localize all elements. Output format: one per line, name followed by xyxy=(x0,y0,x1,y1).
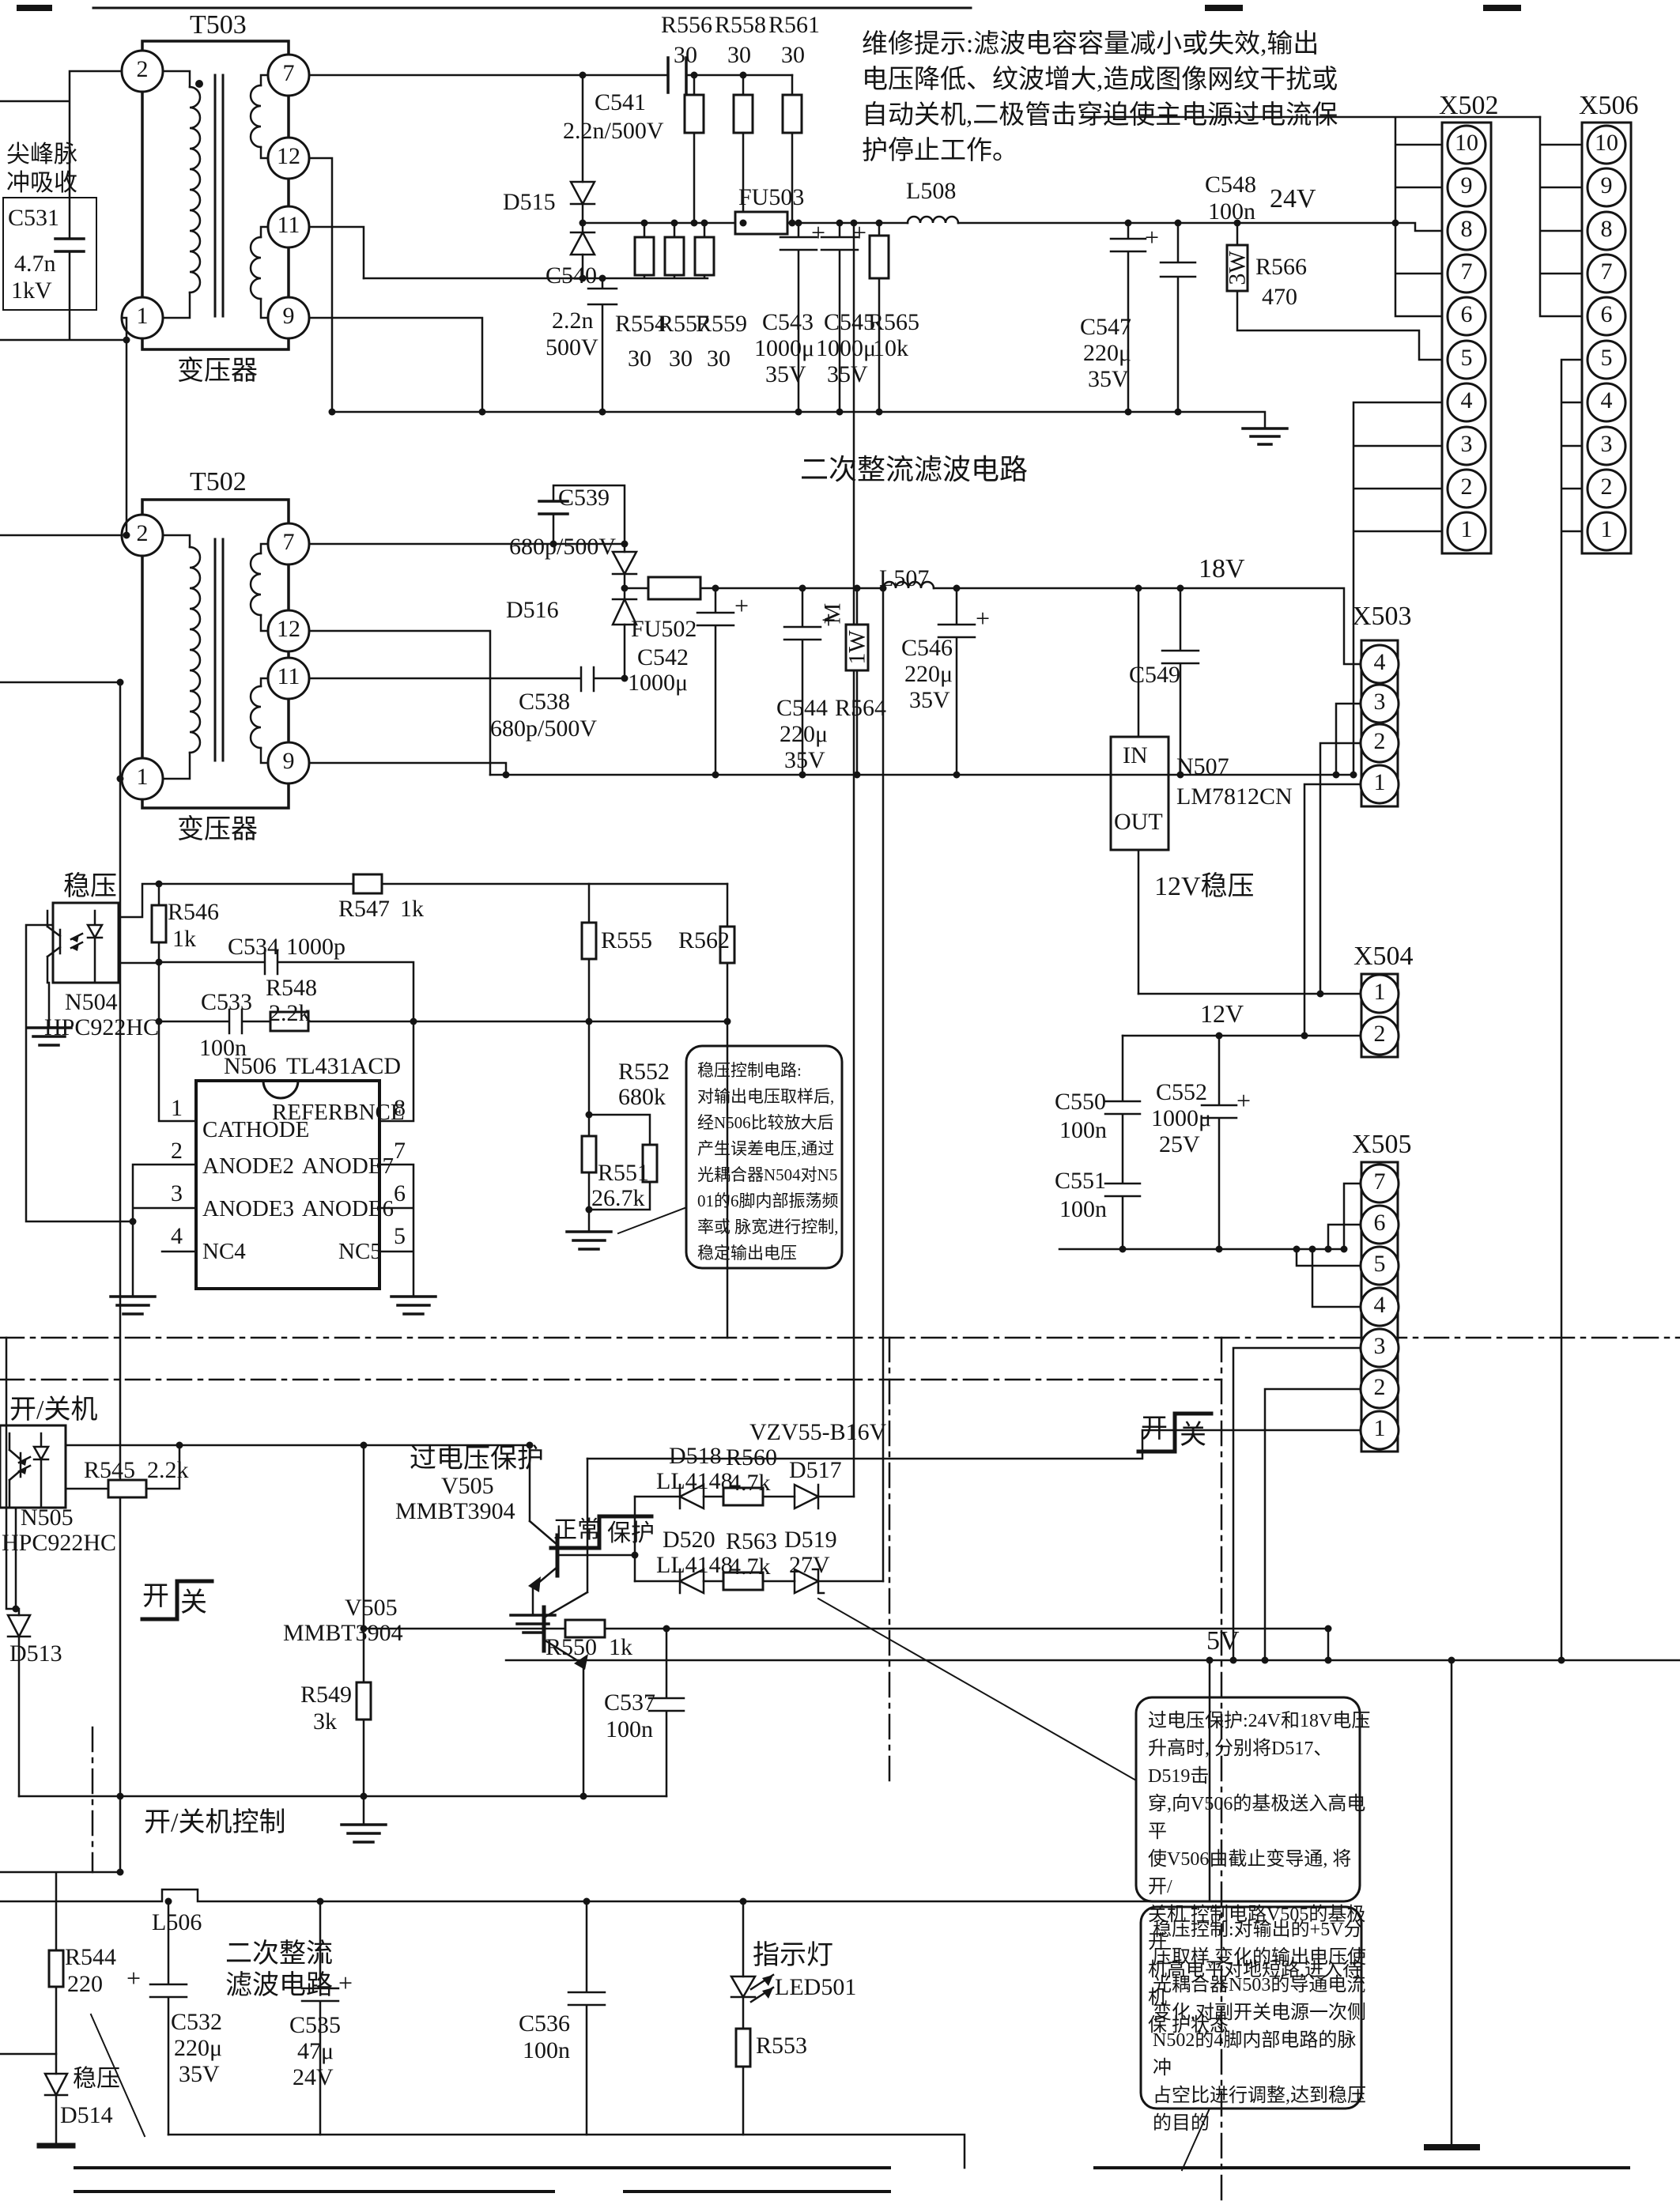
x502-pin7: 7 xyxy=(1449,259,1484,284)
r546-ref: R546 xyxy=(168,900,219,924)
labels-layer: T503变压器尖峰脉冲吸收C5314.7n1kVD515C5412.2n/500… xyxy=(0,0,1680,2201)
wave-normal: 正常 xyxy=(553,1518,601,1542)
n506-nc4: NC4 xyxy=(202,1240,246,1263)
spike-absorb-line1: 尖峰脉 xyxy=(6,142,77,167)
n505-name: 开/关机 xyxy=(9,1396,97,1424)
r560-val: 4.7k xyxy=(729,1470,771,1495)
r566-val: 470 xyxy=(1262,285,1297,309)
r547-val: 1k xyxy=(400,897,424,921)
n506-part: TL431ACD xyxy=(286,1054,401,1078)
sw1-off: 关 xyxy=(180,1589,207,1617)
d518-part: LL4148 xyxy=(656,1469,733,1493)
n507-in: IN xyxy=(1123,743,1148,768)
t503-pin12: 12 xyxy=(271,144,306,168)
r554-val: 30 xyxy=(628,346,651,371)
v506-ref: V505 xyxy=(441,1474,494,1498)
schematic-page: T503变压器尖峰脉冲吸收C5314.7n1kVD515C5412.2n/500… xyxy=(0,0,1680,2201)
n505-ref: N505 xyxy=(21,1505,74,1530)
c544-val1: 220μ xyxy=(780,722,828,746)
t502-pin1: 1 xyxy=(125,764,160,789)
n506-p3: 3 xyxy=(171,1181,183,1206)
r545-ref: R545 xyxy=(84,1458,135,1482)
section-title-bottom2: 滤波电路 xyxy=(225,1972,333,1999)
t502-pin12: 12 xyxy=(271,617,306,641)
n507-part: LM7812CN xyxy=(1176,784,1293,809)
c546-ref: C546 xyxy=(901,636,953,660)
x502-pin3: 3 xyxy=(1449,432,1484,456)
service-note: 维修提示:滤波电容容量减小或失效,输出 电压降低、纹波增大,造成图像网纹干扰或 … xyxy=(862,27,1407,169)
r553-ref: R553 xyxy=(756,2033,807,2058)
c552-ref: C552 xyxy=(1156,1080,1207,1104)
x502-pin10: 10 xyxy=(1449,130,1484,155)
x506-pin10: 10 xyxy=(1589,130,1624,155)
n504-part: HPC922HC xyxy=(44,1015,159,1040)
c547-plus: + xyxy=(1145,225,1159,251)
x503-pin3: 3 xyxy=(1362,689,1397,714)
c542-plus: + xyxy=(734,593,749,619)
n506-anode6: ANODE6 xyxy=(302,1197,394,1221)
n506-ref: N506 xyxy=(224,1054,277,1078)
c549-ref: C549 xyxy=(1129,663,1180,687)
rail-5v: 5V xyxy=(1206,1627,1240,1655)
x502-pin6: 6 xyxy=(1449,302,1484,327)
c539-val: 680p/500V xyxy=(509,534,616,559)
t503-pin1: 1 xyxy=(125,304,160,328)
led-name: 指示灯 xyxy=(753,1942,833,1969)
c538-ref: C538 xyxy=(519,689,570,714)
rail-12v: 12V xyxy=(1200,1001,1244,1027)
r555-ref: R555 xyxy=(601,928,652,953)
r550-val: 1k xyxy=(609,1635,632,1659)
n506-nc5: NC5 xyxy=(338,1240,382,1263)
t503-pin9: 9 xyxy=(271,304,306,328)
c531-val2: 1kV xyxy=(11,278,52,303)
x502-pin9: 9 xyxy=(1449,173,1484,198)
n506-p4: 4 xyxy=(171,1224,183,1248)
c535-val1: 47μ xyxy=(297,2039,334,2063)
c531-val1: 4.7n xyxy=(14,251,56,276)
c552-val2: 25V xyxy=(1159,1132,1200,1157)
t503-pin2: 2 xyxy=(125,57,160,81)
r547-ref: R547 xyxy=(338,897,390,921)
r566-ref: R566 xyxy=(1255,255,1307,279)
v505-ref: V505 xyxy=(345,1595,398,1620)
r548-ref: R548 xyxy=(266,976,317,1000)
d514-name: 稳压 xyxy=(73,2067,120,2091)
spike-absorb-line2: 冲吸收 xyxy=(6,171,77,195)
c543-plus: + xyxy=(811,220,825,246)
d516-ref: D516 xyxy=(506,598,559,622)
x506-pin4: 4 xyxy=(1589,388,1624,413)
r549-val: 3k xyxy=(313,1709,337,1734)
c541-ref: C541 xyxy=(595,90,646,115)
c550-ref: C550 xyxy=(1055,1089,1106,1114)
c532-ref: C532 xyxy=(171,2010,222,2034)
d519-val: 27V xyxy=(789,1553,830,1577)
r563-val: 4.7k xyxy=(729,1554,771,1579)
c539-ref: C539 xyxy=(558,485,610,510)
c545-val1: 1000μ xyxy=(816,336,876,361)
n506-reference: REFERBNCE xyxy=(272,1100,405,1124)
n506-p7: 7 xyxy=(394,1138,406,1163)
r548-val: 2.2k xyxy=(269,1001,311,1025)
t503-name: 变压器 xyxy=(177,357,258,385)
sw1-on: 开 xyxy=(142,1583,169,1610)
x505-pin1: 1 xyxy=(1362,1416,1397,1440)
c532-val1: 220μ xyxy=(174,2036,222,2060)
c541-val: 2.2n/500V xyxy=(563,119,664,143)
r557-val: 30 xyxy=(669,346,693,371)
r561-ref: R561 xyxy=(768,13,820,37)
t503-pin11: 11 xyxy=(271,213,306,237)
n506-p8: 8 xyxy=(394,1096,406,1120)
x503-pin2: 2 xyxy=(1362,729,1397,753)
c532-val2: 35V xyxy=(179,2062,220,2086)
c551-val: 100n xyxy=(1059,1197,1107,1221)
t502-pin2: 2 xyxy=(125,521,160,546)
n506-p6: 6 xyxy=(394,1181,406,1206)
c531-ref: C531 xyxy=(8,206,59,230)
x505-pin4: 4 xyxy=(1362,1293,1397,1317)
r558-val: 30 xyxy=(727,43,751,67)
x506-pin9: 9 xyxy=(1589,173,1624,198)
r544-val: 220 xyxy=(67,1972,103,1996)
d520-part: LL4148 xyxy=(656,1553,733,1577)
c535-ref: C535 xyxy=(289,2013,341,2037)
c534-val: 1000p xyxy=(286,934,345,959)
x505-pin3: 3 xyxy=(1362,1334,1397,1358)
c552-plus: + xyxy=(1236,1088,1251,1114)
v506-part: MMBT3904 xyxy=(395,1499,515,1523)
r564-ref: R564 xyxy=(835,696,886,720)
c542-val: 1000μ xyxy=(628,670,688,695)
d514-ref: D514 xyxy=(60,2103,113,2127)
r559-ref: R559 xyxy=(696,311,747,336)
x506-pin7: 7 xyxy=(1589,259,1624,284)
n506-anode2: ANODE2 xyxy=(202,1154,294,1178)
r551-val: 26.7k xyxy=(591,1186,645,1210)
c544-val2: 35V xyxy=(784,748,825,772)
c548-val: 100n xyxy=(1208,199,1255,224)
r550-ref: R550 xyxy=(546,1635,597,1659)
c535-val2: 24V xyxy=(293,2065,334,2090)
c543-val1: 1000μ xyxy=(754,336,814,361)
n506-anode7: ANODE7 xyxy=(302,1154,394,1178)
x506-pin3: 3 xyxy=(1589,432,1624,456)
c532-plus: + xyxy=(126,1965,141,1991)
c547-val2: 35V xyxy=(1088,367,1129,391)
x504-pin1: 1 xyxy=(1362,980,1397,1004)
fu502-ref: FU502 xyxy=(631,617,697,641)
c537-ref: C537 xyxy=(604,1690,655,1715)
c547-ref: C547 xyxy=(1080,315,1131,339)
d513-ref: D513 xyxy=(9,1641,62,1666)
t502-pin11: 11 xyxy=(271,664,306,689)
d518-ref: D518 xyxy=(669,1444,722,1468)
zener-type: VZV55-B16V xyxy=(749,1420,886,1444)
x506-pin8: 8 xyxy=(1589,217,1624,241)
x505-pin2: 2 xyxy=(1362,1375,1397,1399)
c542-ref: C542 xyxy=(637,645,689,670)
r556-ref: R556 xyxy=(661,13,712,37)
fu503-ref: FU503 xyxy=(738,185,804,210)
ovp-title: 过电压保护 xyxy=(410,1445,544,1473)
x503-pin1: 1 xyxy=(1362,770,1397,795)
x506-ref: X506 xyxy=(1579,92,1639,119)
c548-ref: C548 xyxy=(1205,172,1256,197)
c546-plus: + xyxy=(976,606,990,632)
n507-out: OUT xyxy=(1114,810,1163,834)
x503-pin4: 4 xyxy=(1362,650,1397,674)
r562-ref: R562 xyxy=(678,928,730,953)
r564-power: 1W xyxy=(844,630,869,664)
x506-pin5: 5 xyxy=(1589,345,1624,370)
t503-ref: T503 xyxy=(190,11,247,39)
c543-val2: 35V xyxy=(765,362,806,387)
x505-pin5: 5 xyxy=(1362,1252,1397,1276)
n504-ref: N504 xyxy=(65,990,118,1014)
x505-pin6: 6 xyxy=(1362,1210,1397,1235)
r563-ref: R563 xyxy=(726,1529,777,1554)
l507-ref: L507 xyxy=(879,566,929,591)
c543-ref: C543 xyxy=(762,310,814,334)
c535-plus: + xyxy=(338,1970,353,1996)
c540-ref: C540 xyxy=(546,263,597,288)
x506-pin1: 1 xyxy=(1589,517,1624,542)
x504-pin2: 2 xyxy=(1362,1021,1397,1046)
wave-protect: 保护 xyxy=(607,1521,655,1546)
led501-ref: LED501 xyxy=(775,1975,856,1999)
c533-ref: C533 xyxy=(201,990,252,1014)
c536-val: 100n xyxy=(523,2038,570,2063)
n507-name: 12V稳压 xyxy=(1154,873,1255,900)
d519-ref: D519 xyxy=(784,1527,837,1552)
c545-val2: 35V xyxy=(827,362,868,387)
t503-pin7: 7 xyxy=(271,61,306,85)
x505-ref: X505 xyxy=(1352,1131,1412,1158)
c547-val1: 220μ xyxy=(1083,341,1131,365)
c540-val1: 2.2n xyxy=(552,308,594,333)
x502-pin2: 2 xyxy=(1449,474,1484,499)
c534-ref: C534 xyxy=(228,934,279,959)
t502-pin7: 7 xyxy=(271,530,306,554)
d520-ref: D520 xyxy=(663,1527,715,1552)
x502-pin8: 8 xyxy=(1449,217,1484,241)
n506-p2: 2 xyxy=(171,1138,183,1163)
t502-pin9: 9 xyxy=(271,749,306,773)
n506-p5: 5 xyxy=(394,1224,406,1248)
r544-ref: R544 xyxy=(65,1945,116,1969)
section-title-bottom1: 二次整流 xyxy=(225,1940,333,1968)
r552-val: 680k xyxy=(618,1085,666,1109)
n507-ref: N507 xyxy=(1176,754,1229,779)
c538-val: 680p/500V xyxy=(490,716,597,741)
r546-val: 1k xyxy=(172,927,196,951)
section-title-top: 二次整流滤波电路 xyxy=(800,455,1028,485)
c550-val: 100n xyxy=(1059,1118,1107,1142)
d517-ref: D517 xyxy=(789,1458,842,1482)
x506-pin6: 6 xyxy=(1589,302,1624,327)
r552-ref: R552 xyxy=(618,1059,670,1084)
c536-ref: C536 xyxy=(519,2011,570,2036)
v505-part: MMBT3904 xyxy=(283,1621,403,1645)
c546-val2: 35V xyxy=(909,688,950,712)
t502-ref: T502 xyxy=(190,468,247,496)
r565-val: 10k xyxy=(873,336,908,361)
c540-val2: 500V xyxy=(546,335,598,360)
r558-ref: R558 xyxy=(715,13,766,37)
r561-val: 30 xyxy=(781,43,805,67)
r545-val: 2.2k xyxy=(147,1458,189,1482)
l508-ref: L508 xyxy=(906,179,956,203)
rail-24v: 24V xyxy=(1270,185,1316,213)
t502-name: 变压器 xyxy=(177,816,258,844)
l506-ref: L506 xyxy=(152,1910,202,1935)
n506-anode3: ANODE3 xyxy=(202,1197,294,1221)
r559-val: 30 xyxy=(707,346,731,371)
d515-ref: D515 xyxy=(503,190,556,214)
n504-name: 稳压 xyxy=(63,873,117,900)
r565-ref: R565 xyxy=(868,310,919,334)
c552-val1: 1000μ xyxy=(1151,1106,1211,1131)
note-regulation-loop: 稳压控制电路: 对输出电压取样后, 经N506比较放大后 产生误差电压,通过 光… xyxy=(697,1058,871,1267)
sw3-off: 关 xyxy=(1180,1421,1206,1449)
x503-ref: X503 xyxy=(1352,602,1412,630)
x504-ref: X504 xyxy=(1353,942,1414,970)
n505-part: HPC922HC xyxy=(2,1531,116,1555)
sw3-on: 开 xyxy=(1141,1415,1168,1443)
x502-pin4: 4 xyxy=(1449,388,1484,413)
c544-ref: C544 xyxy=(776,696,828,720)
c551-ref: C551 xyxy=(1055,1168,1106,1193)
rail-18v: 18V xyxy=(1199,555,1245,583)
c544-plus: + xyxy=(821,607,836,633)
x502-pin5: 5 xyxy=(1449,345,1484,370)
c545-plus: + xyxy=(852,220,866,246)
x502-ref: X502 xyxy=(1439,92,1499,119)
note-5v-regulation: 稳压控制:对输出的+5V分 压取样,变化的输出电压使 光耦合器N503的导通电流… xyxy=(1153,1916,1374,2138)
r551-ref: R551 xyxy=(598,1161,649,1185)
r556-val: 30 xyxy=(674,43,697,67)
c546-val1: 220μ xyxy=(904,662,953,686)
r566-power: 3W xyxy=(1225,251,1249,285)
r560-ref: R560 xyxy=(726,1445,777,1470)
onoff-control-title: 开/关机控制 xyxy=(144,1809,285,1837)
n506-p1: 1 xyxy=(171,1096,183,1120)
r549-ref: R549 xyxy=(300,1682,352,1707)
x505-pin7: 7 xyxy=(1362,1169,1397,1194)
x506-pin2: 2 xyxy=(1589,474,1624,499)
c537-val: 100n xyxy=(606,1717,653,1742)
x502-pin1: 1 xyxy=(1449,517,1484,542)
